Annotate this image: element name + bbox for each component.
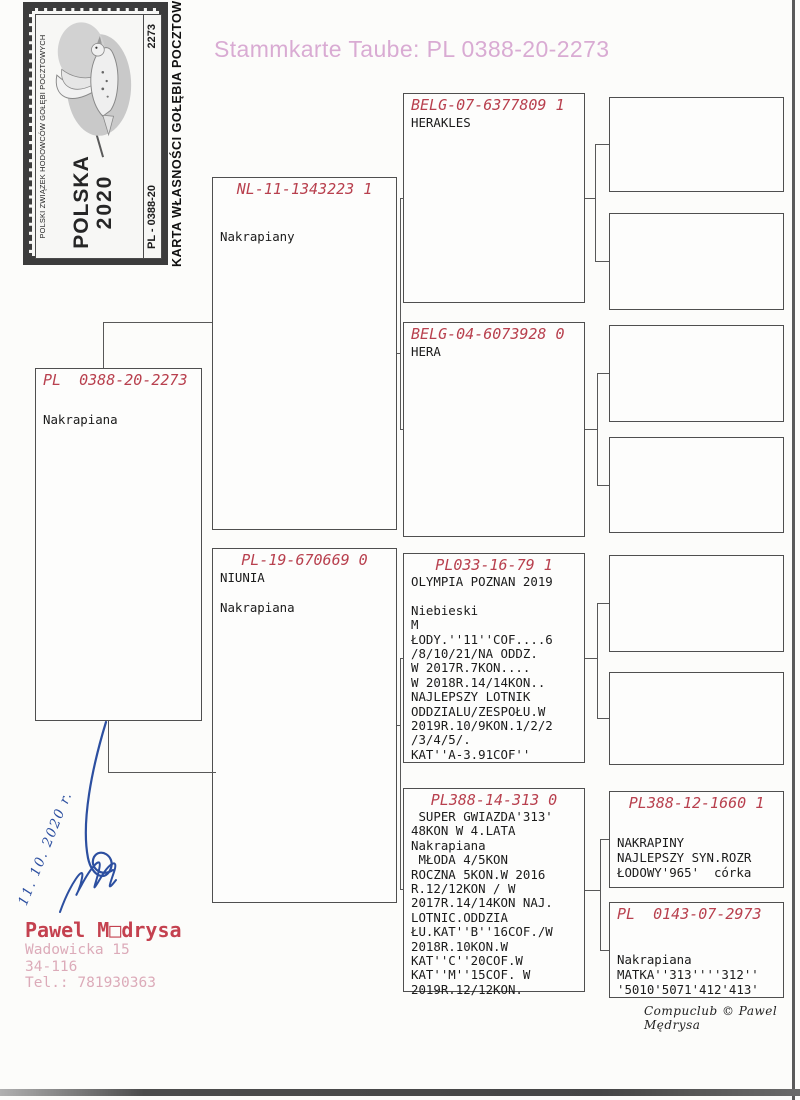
ring-number: PL 0388-20-2273 bbox=[43, 371, 194, 390]
pedigree-connector-line bbox=[585, 429, 597, 430]
pedigree-box-mmf: PL388-12-1660 1 NAKRAPINY NAJLEPSZY SYN.… bbox=[609, 791, 784, 888]
pedigree-box-mf: PL033-16-79 1 OLYMPIA POZNAN 2019 Niebie… bbox=[403, 553, 585, 763]
pedigree-connector-line bbox=[400, 658, 401, 890]
pedigree-connector-line bbox=[585, 658, 597, 659]
pedigree-connector-line bbox=[400, 198, 404, 199]
owner-street: Wadowicka 15 bbox=[25, 942, 182, 959]
bird-description: HERA bbox=[411, 344, 577, 359]
bird-description: Nakrapiana bbox=[43, 412, 194, 427]
ring-number: PL033-16-79 1 bbox=[411, 556, 577, 575]
ownership-card-vertical-label: KARTA WŁASNOŚCI GOŁĘBIA POCZTOWEGO bbox=[170, 1, 184, 267]
pedigree-box-empty-3 bbox=[609, 325, 784, 422]
stamp-serial-number: 2273 bbox=[146, 24, 158, 48]
footer-credit: Compuclub © Pawel Mędrysa bbox=[644, 1004, 800, 1032]
pedigree-connector-line bbox=[103, 322, 212, 323]
pedigree-connector-line bbox=[597, 603, 609, 604]
pedigree-connector-line bbox=[597, 603, 598, 718]
pedigree-connector-line bbox=[600, 950, 609, 951]
page-title: Stammkarte Taube: PL 0388-20-2273 bbox=[214, 36, 610, 63]
pedigree-connector-line bbox=[595, 144, 596, 262]
bird-description: Nakrapiany bbox=[220, 229, 389, 244]
bird-description: HERAKLES bbox=[411, 115, 577, 130]
ring-ownership-stamp: POLSKI ZWIĄZEK HODOWCÓW GOŁĘBI POCZTOWYC… bbox=[23, 2, 168, 265]
pedigree-connector-line bbox=[585, 890, 600, 891]
ring-number: PL388-14-313 0 bbox=[411, 791, 577, 810]
pedigree-connector-line bbox=[585, 198, 595, 199]
pedigree-card-page: POLSKI ZWIĄZEK HODOWCÓW GOŁĘBI POCZTOWYC… bbox=[0, 0, 800, 1100]
pedigree-box-father: NL-11-1343223 1 Nakrapiany bbox=[212, 177, 397, 530]
owner-phone: Tel.: 781930363 bbox=[25, 975, 182, 992]
scan-edge-right bbox=[792, 0, 795, 1100]
pedigree-box-ff: BELG-07-6377809 1 HERAKLES bbox=[403, 93, 585, 303]
pedigree-box-empty-5 bbox=[609, 555, 784, 652]
pedigree-connector-line bbox=[600, 839, 609, 840]
pedigree-connector-line bbox=[595, 144, 609, 145]
pedigree-box-empty-6 bbox=[609, 672, 784, 765]
bird-description: OLYMPIA POZNAN 2019 Niebieski M ŁODY.''1… bbox=[411, 575, 577, 762]
scan-edge-bottom bbox=[0, 1089, 800, 1096]
ring-number: NL-11-1343223 1 bbox=[220, 180, 389, 199]
pedigree-box-empty-1 bbox=[609, 97, 784, 192]
owner-name: Pawel M□drysa bbox=[25, 918, 182, 942]
owner-block: Pawel M□drysa Wadowicka 15 34-116 Tel.: … bbox=[25, 918, 182, 992]
pedigree-connector-line bbox=[600, 839, 601, 950]
pedigree-box-mmm: PL 0143-07-2973 Nakrapiana MATKA''313'''… bbox=[609, 902, 784, 998]
owner-postal-code: 34-116 bbox=[25, 959, 182, 976]
pedigree-connector-line bbox=[597, 373, 609, 374]
stamp-perforation: POLSKI ZWIĄZEK HODOWCÓW GOŁĘBI POCZTOWYC… bbox=[29, 8, 162, 259]
pedigree-connector-line bbox=[597, 718, 609, 719]
pedigree-box-fm: BELG-04-6073928 0 HERA bbox=[403, 322, 585, 537]
pigeon-photo-icon bbox=[48, 18, 138, 146]
ring-number: PL-19-670669 0 bbox=[220, 551, 389, 570]
ring-number: BELG-07-6377809 1 bbox=[411, 96, 577, 115]
stamp-year-label: 2020 bbox=[93, 152, 116, 252]
pedigree-connector-line bbox=[400, 429, 404, 430]
stamp-country-label: POLSKA bbox=[70, 152, 93, 252]
stamp-ring-series: PL - 0388-20 bbox=[146, 185, 158, 249]
pedigree-box-mm: PL388-14-313 0 SUPER GWIAZDA'313' 48KON … bbox=[403, 788, 585, 992]
pedigree-box-subject: PL 0388-20-2273 Nakrapiana bbox=[35, 368, 202, 721]
ring-number: PL 0143-07-2973 bbox=[617, 905, 776, 924]
stamp-content: POLSKI ZWIĄZEK HODOWCÓW GOŁĘBI POCZTOWYC… bbox=[35, 14, 162, 259]
pedigree-box-empty-4 bbox=[609, 437, 784, 533]
pedigree-connector-line bbox=[400, 658, 404, 659]
pedigree-connector-line bbox=[597, 485, 609, 486]
stamp-ring-row: PL - 0388-20 2273 bbox=[143, 15, 161, 258]
stamp-country-year: POLSKA 2020 bbox=[70, 152, 116, 252]
bird-description: SUPER GWIAZDA'313' 48KON W 4.LATA Nakrap… bbox=[411, 810, 577, 997]
pedigree-connector-line bbox=[103, 322, 104, 368]
bird-description: NAKRAPINY NAJLEPSZY SYN.ROZR ŁODOWY'965'… bbox=[617, 835, 776, 880]
pedigree-box-empty-2 bbox=[609, 213, 784, 310]
pedigree-connector-line bbox=[597, 373, 598, 485]
pedigree-box-mother: PL-19-670669 0 NIUNIA Nakrapiana bbox=[212, 548, 397, 903]
bird-description: NIUNIA Nakrapiana bbox=[220, 570, 389, 615]
stamp-association-label: POLSKI ZWIĄZEK HODOWCÓW GOŁĘBI POCZTOWYC… bbox=[38, 15, 47, 258]
pedigree-connector-line bbox=[400, 889, 404, 890]
ring-number: PL388-12-1660 1 bbox=[617, 794, 776, 813]
bird-description: Nakrapiana MATKA''313''''312'' '5010'507… bbox=[617, 952, 776, 997]
pedigree-connector-line bbox=[400, 198, 401, 430]
ring-number: BELG-04-6073928 0 bbox=[411, 325, 577, 344]
pedigree-connector-line bbox=[595, 261, 609, 262]
